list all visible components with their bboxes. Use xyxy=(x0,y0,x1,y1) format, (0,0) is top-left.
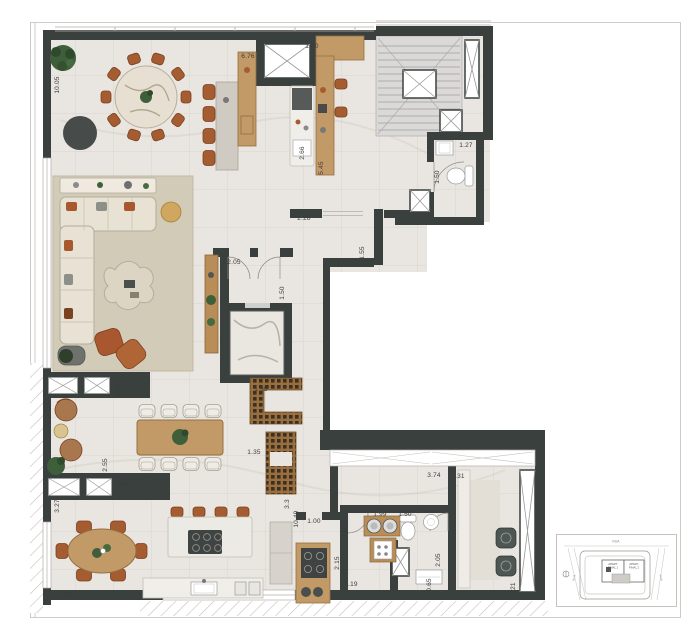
duct-shaft xyxy=(465,40,479,98)
tall-shaft xyxy=(520,470,535,592)
console-table xyxy=(60,178,156,193)
key-plan-street-top: RUA xyxy=(612,540,620,544)
column xyxy=(48,377,78,394)
column xyxy=(86,478,112,496)
entry-console xyxy=(205,255,218,353)
sink-counter xyxy=(143,578,263,598)
floor-plan-drawing: RUA RUA RUA APART. FINAL 1 APART. FINAL … xyxy=(0,0,692,640)
floor-plan-canvas: RUA RUA RUA APART. FINAL 1 APART. FINAL … xyxy=(0,0,692,640)
pouf xyxy=(58,346,85,365)
storage-mat xyxy=(470,480,500,580)
round-ottoman xyxy=(63,116,97,150)
plant xyxy=(50,45,76,71)
column xyxy=(48,478,80,496)
bath-shaft xyxy=(410,190,430,212)
column xyxy=(84,377,110,394)
elevator-door xyxy=(245,303,270,308)
key-plan-inset: RUA RUA RUA APART. FINAL 1 APART. FINAL … xyxy=(557,535,677,607)
coffee-table xyxy=(104,261,154,309)
key-plan-unit-2-label-2: FINAL 2 xyxy=(629,566,640,570)
side-table xyxy=(161,202,181,222)
key-plan-unit-1-label-2: FINAL 1 xyxy=(608,566,619,570)
stair-shaft xyxy=(403,70,436,98)
column xyxy=(440,110,462,132)
elevator-shaft xyxy=(264,44,310,78)
private-elevator xyxy=(230,303,284,375)
